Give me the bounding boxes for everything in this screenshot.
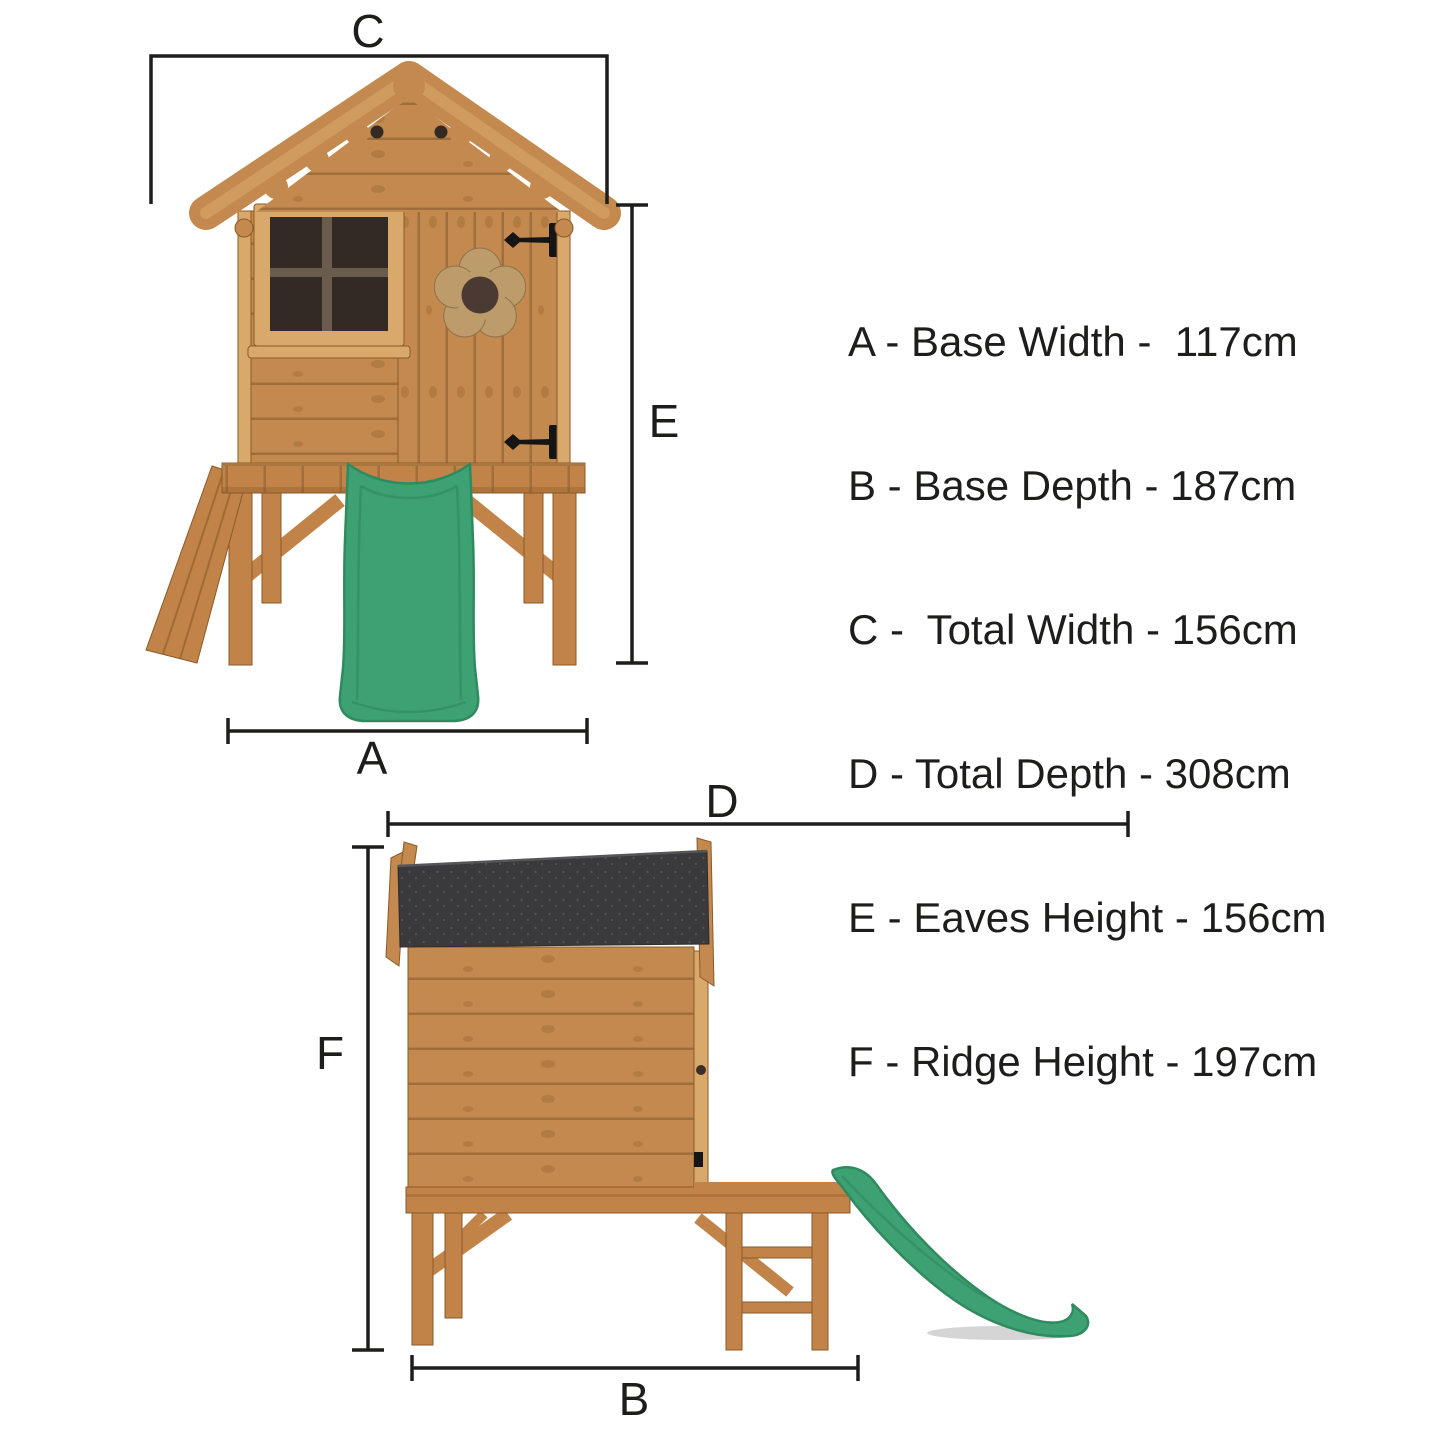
window-sill bbox=[248, 346, 410, 358]
front-window bbox=[248, 204, 410, 358]
side-door-edge bbox=[694, 951, 708, 1211]
side-slide bbox=[832, 1167, 1088, 1336]
dimension-list: A - Base Width - 117cm B - Base Depth - … bbox=[848, 222, 1327, 1134]
dim-letter-F: F bbox=[316, 1030, 344, 1076]
side-wall bbox=[408, 947, 694, 1187]
dim-line-ridge-height-F bbox=[352, 847, 384, 1350]
front-leg-inner-right bbox=[524, 493, 543, 603]
dim-letter-A: A bbox=[357, 735, 388, 781]
roof-felt-panel bbox=[398, 851, 709, 947]
front-leg-inner-left bbox=[262, 493, 281, 603]
ridge-cap bbox=[393, 70, 425, 102]
side-deck bbox=[406, 1182, 850, 1213]
dimension-list-item-b: B - Base Depth - 187cm bbox=[848, 462, 1327, 510]
front-view bbox=[146, 56, 648, 744]
dimension-list-item-f: F - Ridge Height - 197cm bbox=[848, 1038, 1327, 1086]
door-knob bbox=[696, 1065, 706, 1075]
dimension-list-item-a: A - Base Width - 117cm bbox=[848, 318, 1327, 366]
dimension-list-item-d: D - Total Depth - 308cm bbox=[848, 750, 1327, 798]
side-hinge bbox=[694, 1152, 703, 1167]
porthole-window bbox=[462, 277, 499, 314]
side-ladder bbox=[698, 1213, 828, 1350]
dim-letter-B: B bbox=[619, 1376, 650, 1422]
dim-letter-D: D bbox=[705, 778, 738, 824]
ladder-rung-bottom bbox=[742, 1302, 812, 1313]
front-slide bbox=[340, 464, 478, 721]
gable-vent-left bbox=[371, 126, 384, 139]
side-stilt-legs bbox=[412, 1213, 462, 1345]
log-peg-right bbox=[555, 219, 573, 237]
front-door bbox=[398, 211, 562, 465]
dimension-list-item-e: E - Eaves Height - 156cm bbox=[848, 894, 1327, 942]
dimension-list-item-c: C - Total Width - 156cm bbox=[848, 606, 1327, 654]
porch-deck-top bbox=[694, 1182, 850, 1190]
ladder-rung-top bbox=[742, 1247, 812, 1258]
dim-letter-C: C bbox=[351, 8, 384, 54]
gable-vent-right bbox=[435, 126, 448, 139]
front-leg-outer-right bbox=[553, 493, 576, 665]
log-peg-left bbox=[235, 219, 253, 237]
dim-letter-E: E bbox=[649, 398, 680, 444]
diagram-canvas: C E A D F B A - Base Width - 117cm B - B… bbox=[0, 0, 1445, 1445]
dim-line-eaves-height-E bbox=[616, 205, 648, 663]
